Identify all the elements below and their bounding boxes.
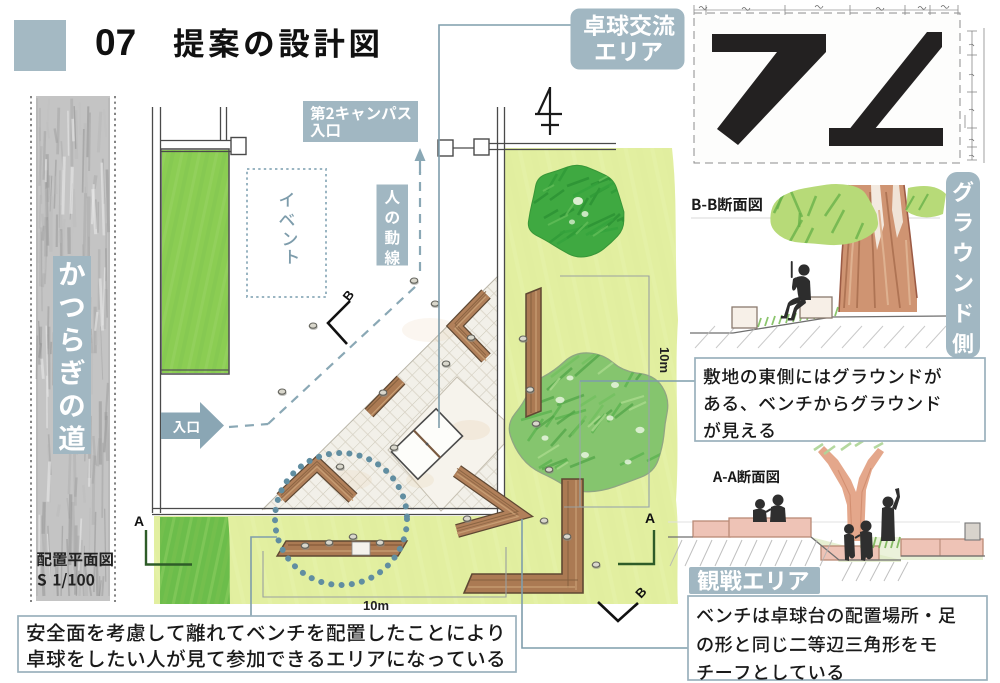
svg-text:A: A — [134, 513, 144, 529]
svg-text:A: A — [645, 510, 655, 526]
svg-text:10m: 10m — [363, 598, 389, 613]
svg-text:10m: 10m — [657, 347, 672, 373]
svg-text:07: 07 — [95, 22, 136, 63]
